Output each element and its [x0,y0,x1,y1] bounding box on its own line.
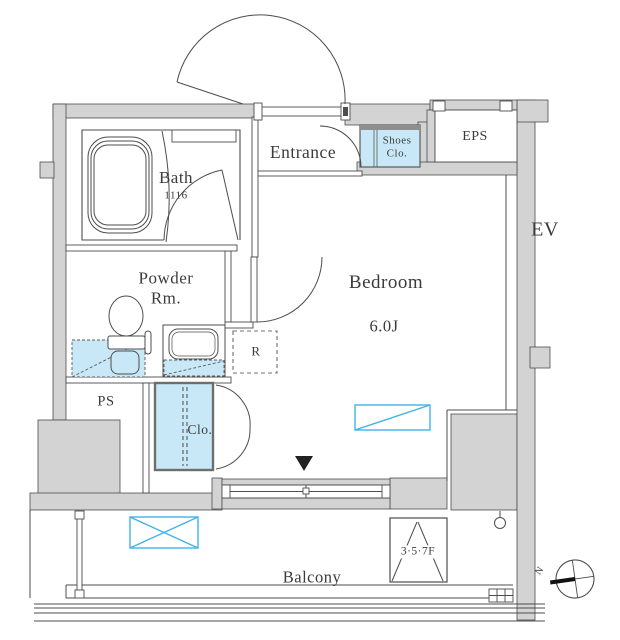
shoes-closet-line1: Shoes [383,134,412,147]
compass-icon [548,558,597,602]
powder-room-line1: Powder [139,268,194,288]
closet-label: Clo. [188,422,213,438]
closet-double-doors [216,385,250,469]
balcony-railing [30,510,545,621]
bedroom-door [251,257,322,322]
bedroom-size-label: 6.0J [369,318,398,337]
bath-size-label: 1116 [164,190,187,203]
refrigerator-label: R [251,345,260,360]
balcony-window [222,485,390,498]
balcony-label: Balcony [283,569,342,588]
shoes-closet-line2: Clo. [383,147,412,160]
drain-icon [495,511,506,529]
eps-label: EPS [462,129,488,145]
bath-shelf-icon [172,130,236,142]
entry-direction-triangle [295,456,313,471]
bedroom-label: Bedroom [349,272,423,294]
bath-label: Bath [159,168,193,188]
entrance-door-arc [177,15,345,104]
floor-plan-drawing [0,0,620,640]
elevator-label: EV [531,219,559,242]
diagonal-box-symbol [355,405,430,430]
door-hinge-mark [343,107,348,116]
cross-box-symbol [130,517,198,548]
powder-room-line2: Rm. [139,288,194,308]
entrance-label: Entrance [270,142,336,162]
hatch-floors-label: 3·5·7F [401,545,435,558]
pipe-space-label: PS [97,394,114,411]
vanity-sink-icon [163,325,225,377]
floor-plan: Bath 1116 Powder Rm. Entrance Shoes Clo.… [0,0,620,640]
shoes-closet-label: Shoes Clo. [383,134,412,159]
powder-room-label: Powder Rm. [139,268,194,307]
escape-hatch-grate [489,589,513,602]
bathtub-icon [88,137,152,233]
